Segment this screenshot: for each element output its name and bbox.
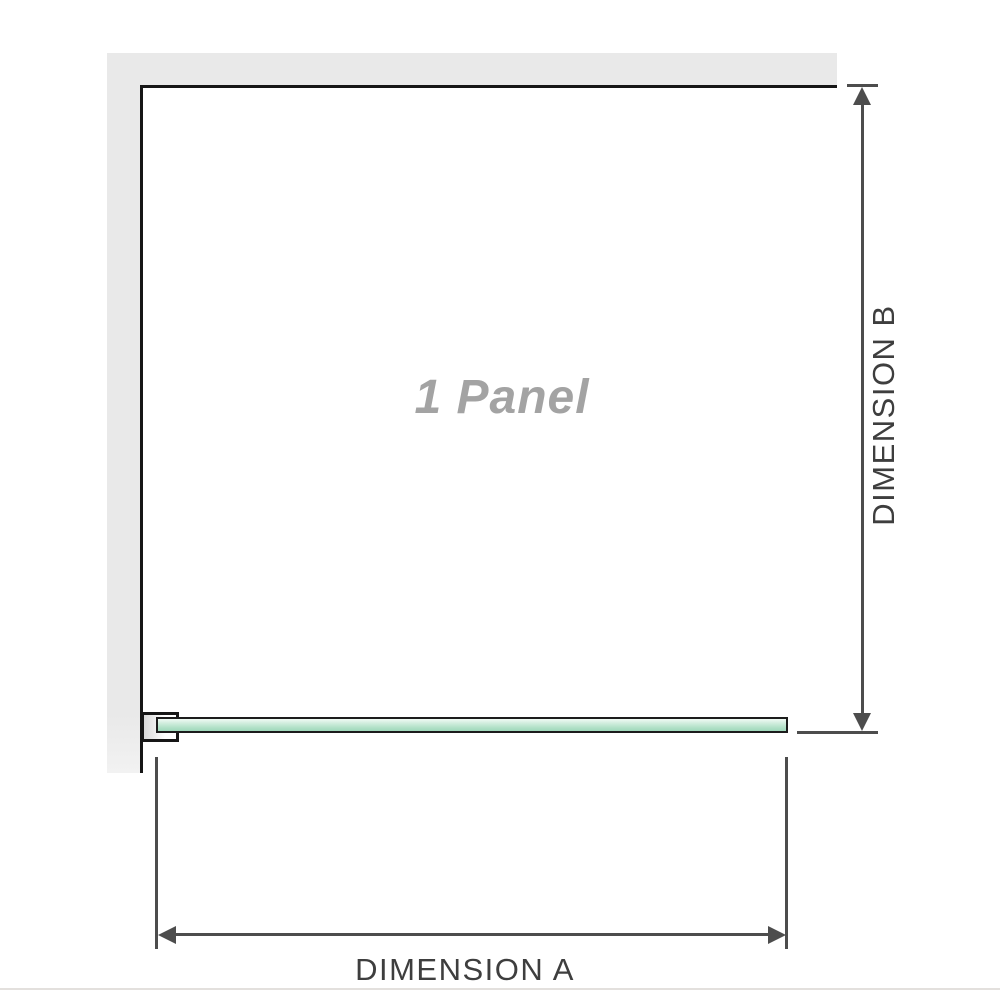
dimension-a-label: DIMENSION A — [315, 950, 615, 990]
dimension-b-label: DIMENSION B — [864, 265, 904, 565]
enclosure-top-border — [140, 85, 837, 88]
arrow-up-icon — [853, 87, 871, 105]
panel-count-label: 1 Panel — [352, 368, 652, 428]
dim-a-line — [172, 933, 772, 936]
arrow-left-icon — [158, 926, 176, 944]
glass-panel — [156, 717, 788, 733]
diagram-canvas: 1 Panel DIMENSION B DIMENSION A — [0, 0, 1000, 1000]
arrow-right-icon — [768, 926, 786, 944]
dim-a-extension-right — [785, 757, 788, 949]
arrow-down-icon — [853, 713, 871, 731]
bottom-divider — [0, 988, 1000, 990]
wall-top — [107, 53, 837, 85]
enclosure-left-border — [140, 85, 143, 773]
dim-a-extension-left — [155, 757, 158, 949]
wall-left — [107, 53, 140, 773]
dim-b-tick-bottom — [797, 731, 878, 734]
